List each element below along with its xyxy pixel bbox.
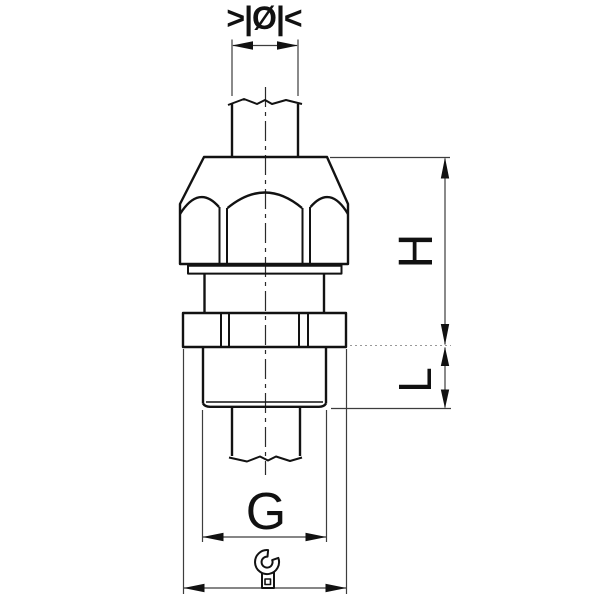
dimension-label-l: L [385, 350, 445, 410]
arrow-g-right [306, 533, 327, 541]
arrow-cable-left [232, 41, 253, 49]
cable-lower-break-line [229, 457, 302, 462]
cable-gland-drawing: >|Ø|< H L G [0, 0, 600, 600]
wrench-handle-hole [265, 579, 271, 585]
dimension-label-g: G [236, 482, 296, 542]
wrench-jaw [255, 550, 279, 574]
arrow-cable-right [277, 41, 298, 49]
dimension-lines [184, 40, 452, 595]
arrow-h-top [441, 158, 449, 179]
cable-diameter-symbol: >|Ø|< [204, 1, 324, 35]
cap-arc-middle [228, 193, 303, 209]
cap-arc-right [311, 197, 349, 214]
wrench-icon [255, 550, 279, 588]
gland-body [180, 99, 348, 462]
arrow-h-bottom [441, 324, 449, 345]
gland-linework [0, 0, 600, 600]
neck [205, 274, 325, 313]
thread-stub [203, 347, 326, 407]
arrow-g-left [203, 533, 224, 541]
cap-hex-face-edges [220, 207, 311, 264]
arrow-wrench-right [326, 584, 347, 592]
cap-nut [180, 157, 348, 264]
middle-nut [183, 313, 346, 347]
arrow-wrench-left [184, 584, 205, 592]
dimension-arrowheads [184, 41, 450, 592]
flange [188, 265, 342, 274]
cap-arc-left [180, 197, 219, 214]
dimension-label-h: H [386, 221, 446, 281]
middle-nut-face-edges [221, 313, 308, 347]
